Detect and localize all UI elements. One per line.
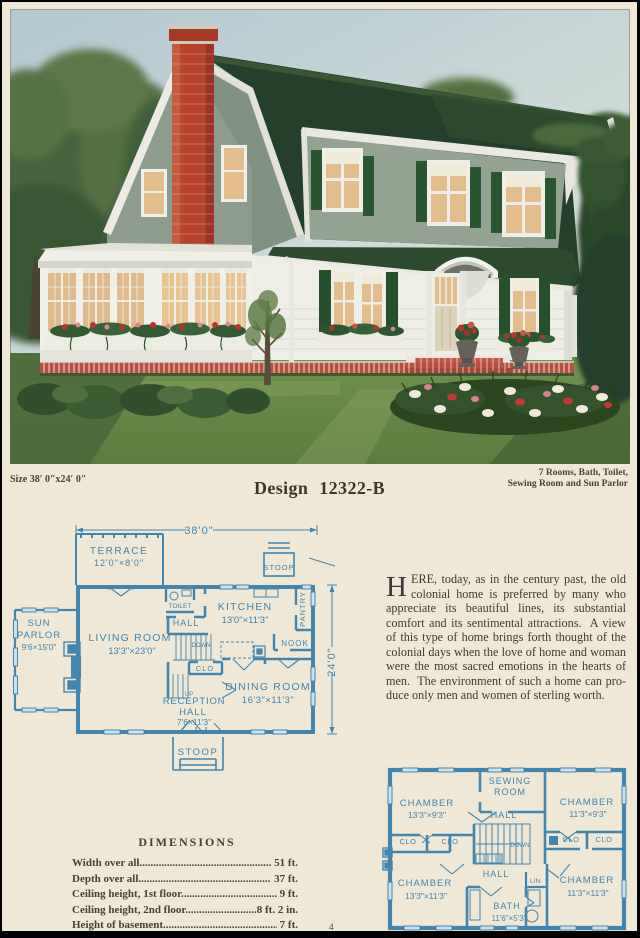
svg-text:HALL: HALL [491, 810, 518, 820]
svg-text:RECEPTION: RECEPTION [163, 696, 226, 707]
svg-text:13'0"×11'3": 13'0"×11'3" [222, 615, 269, 626]
svg-text:LIN.: LIN. [530, 878, 542, 885]
svg-text:BATH: BATH [493, 901, 520, 911]
svg-text:SUN: SUN [27, 618, 50, 629]
svg-text:STOOP: STOOP [263, 563, 294, 572]
svg-text:CLO: CLO [442, 837, 459, 846]
svg-text:CHAMBER: CHAMBER [400, 798, 455, 809]
svg-text:11'3"×9'3": 11'3"×9'3" [569, 809, 606, 819]
svg-text:SEWING: SEWING [489, 776, 532, 786]
svg-text:9'6×15'0": 9'6×15'0" [22, 642, 57, 652]
svg-text:CHAMBER: CHAMBER [560, 875, 615, 886]
svg-text:ROOM: ROOM [494, 787, 526, 797]
svg-text:DOWN: DOWN [511, 843, 530, 849]
svg-text:KITCHEN: KITCHEN [218, 601, 273, 613]
svg-text:CLO: CLO [196, 664, 214, 673]
svg-text:13'3"×11'3": 13'3"×11'3" [405, 891, 447, 901]
svg-text:24'0": 24'0" [326, 647, 338, 676]
svg-text:11'3"×11'3": 11'3"×11'3" [567, 888, 608, 898]
svg-text:TOILET: TOILET [169, 603, 192, 610]
svg-text:38'0": 38'0" [184, 525, 213, 537]
svg-text:PARLOR: PARLOR [17, 630, 61, 641]
svg-text:13'3"×23'0": 13'3"×23'0" [108, 646, 156, 657]
svg-text:CHAMBER: CHAMBER [398, 878, 453, 889]
svg-text:HALL: HALL [483, 869, 510, 879]
svg-text:PANTRY: PANTRY [298, 591, 307, 627]
svg-text:11'6"×5'3": 11'6"×5'3" [491, 914, 526, 923]
svg-text:16'3"×11'3": 16'3"×11'3" [242, 695, 294, 706]
svg-text:DOWN: DOWN [192, 643, 211, 649]
svg-text:TERRACE: TERRACE [90, 546, 148, 557]
svg-text:DINING ROOM: DINING ROOM [225, 681, 311, 693]
svg-text:LIVING ROOM: LIVING ROOM [88, 632, 171, 644]
svg-text:CLO: CLO [400, 837, 417, 846]
svg-text:13'3"×9'3": 13'3"×9'3" [408, 810, 446, 820]
svg-text:STOOP: STOOP [178, 747, 219, 758]
svg-text:CHAMBER: CHAMBER [560, 797, 615, 808]
svg-text:12'0"×8'0": 12'0"×8'0" [94, 558, 144, 568]
svg-text:CLO: CLO [596, 835, 613, 844]
svg-text:HALL: HALL [173, 618, 200, 628]
svg-text:NOOK: NOOK [281, 639, 309, 648]
